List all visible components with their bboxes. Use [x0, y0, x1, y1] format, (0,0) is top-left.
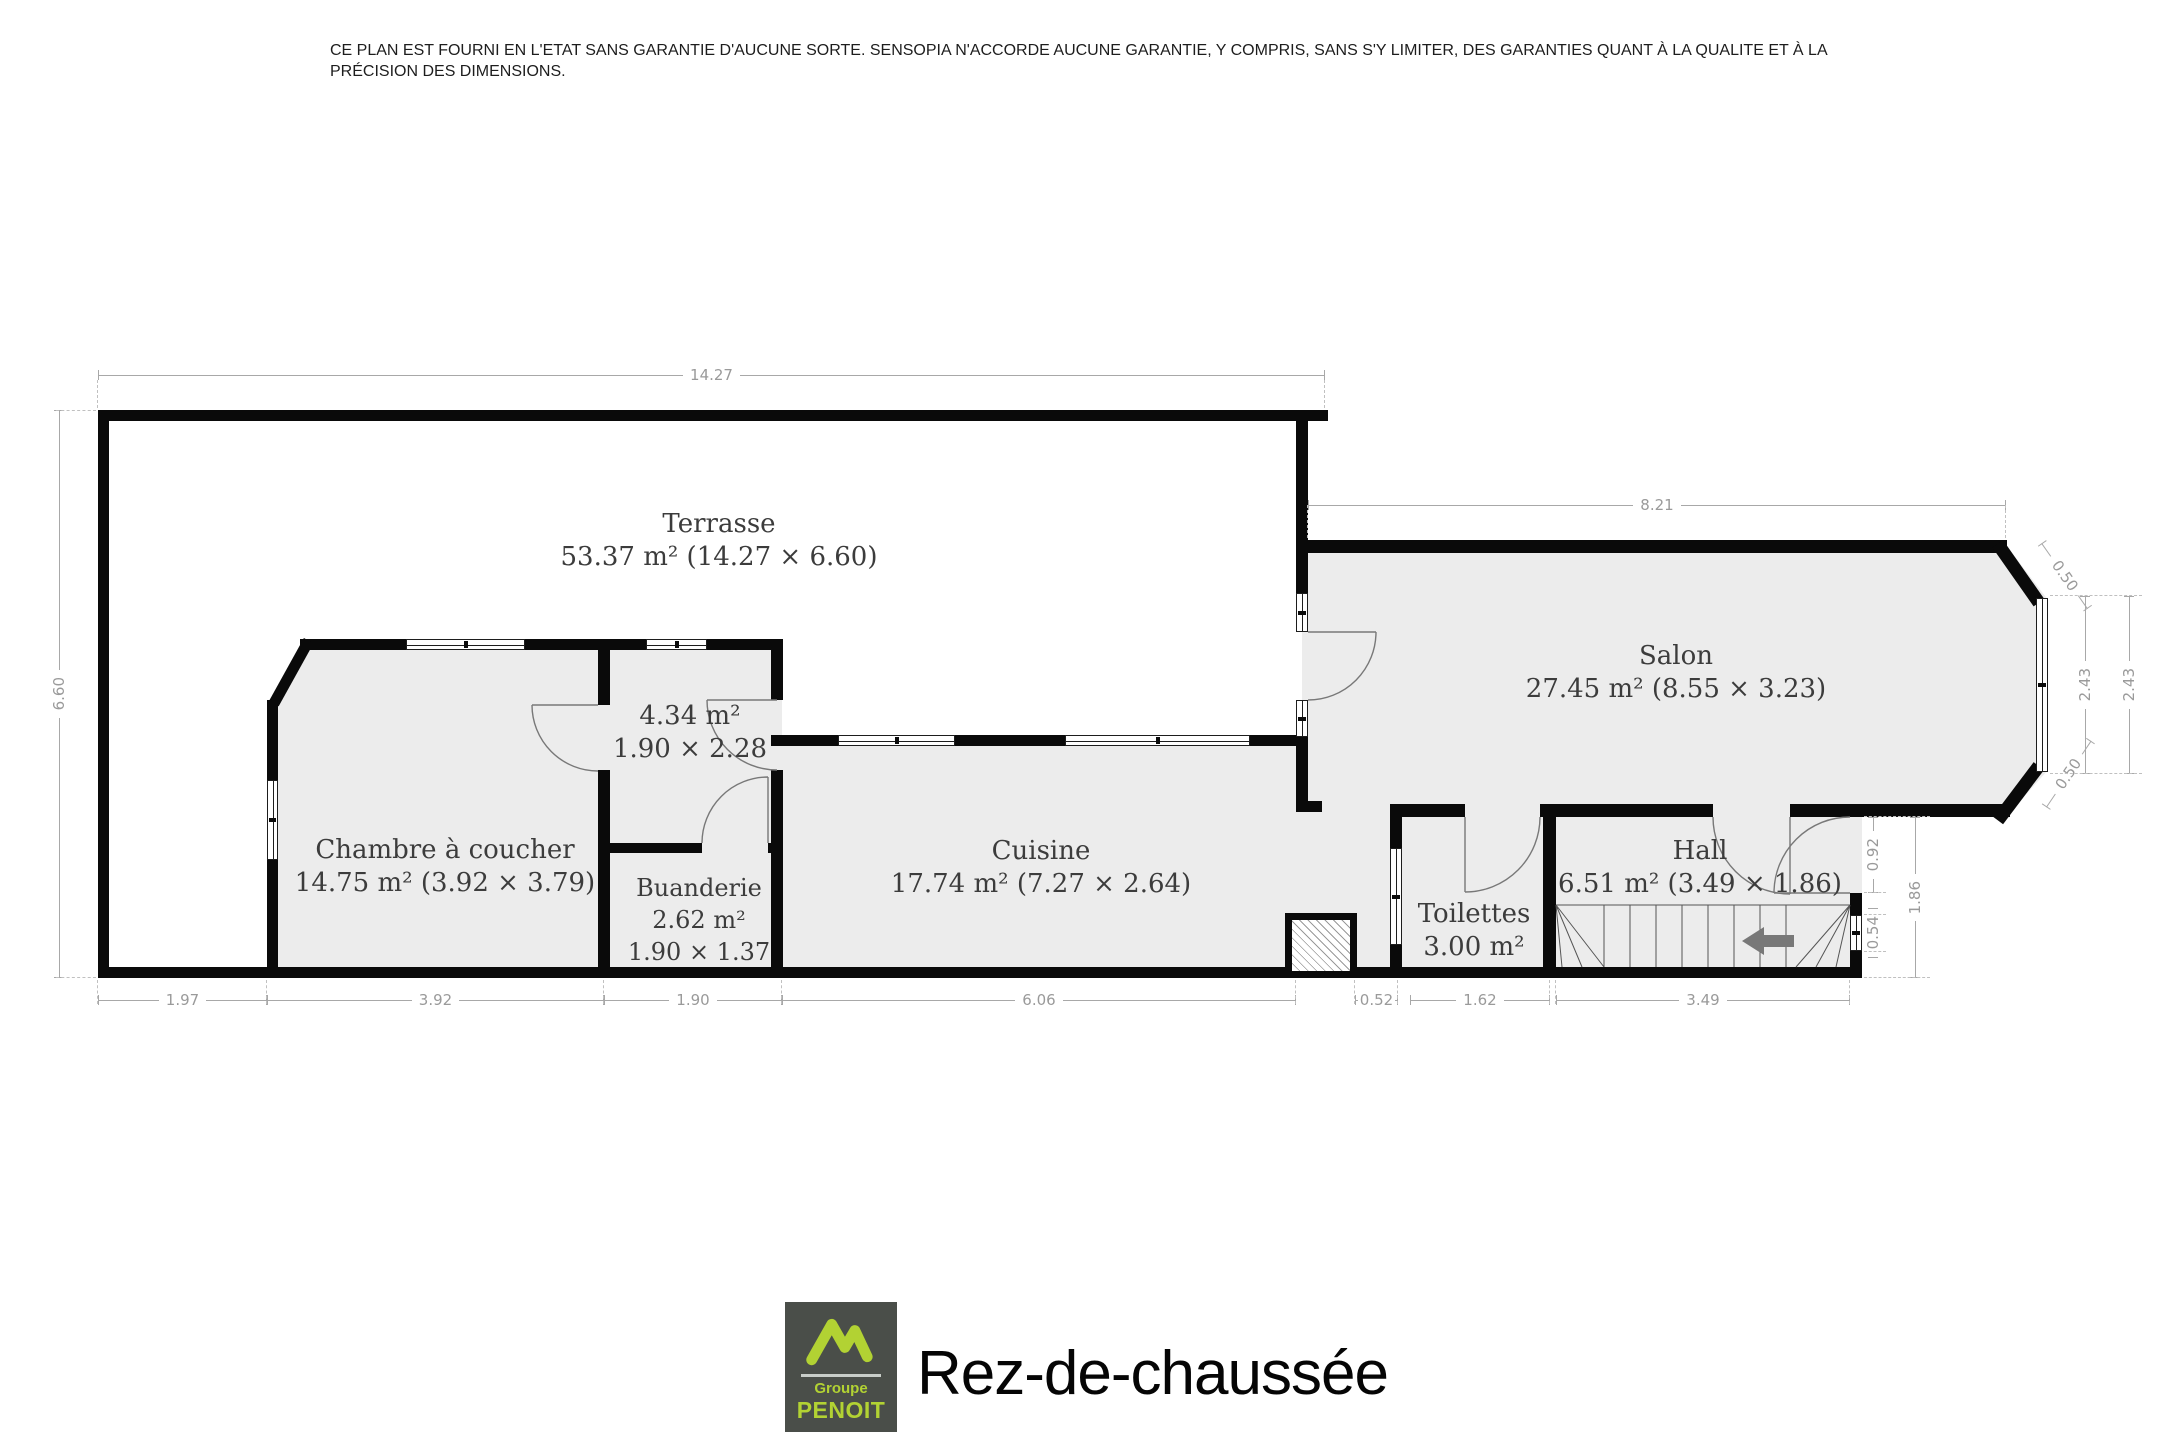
extension-line: [2050, 595, 2142, 596]
extension-line: [56, 410, 96, 411]
extension-line: [1864, 951, 1886, 952]
disclaimer-line2: PRÉCISION DES DIMENSIONS.: [330, 61, 1828, 82]
dimension-hall-depth: 1.86: [1908, 817, 1922, 978]
logo-groupe-text: Groupe: [785, 1380, 897, 1397]
logo-divider: [801, 1374, 881, 1377]
room-label-cuisine: Cuisine 17.74 m² (7.27 × 2.64): [791, 835, 1291, 901]
extension-line: [1864, 816, 1930, 817]
disclaimer-line1: CE PLAN EST FOURNI EN L'ETAT SANS GARANT…: [330, 40, 1828, 61]
wall-bottom: [98, 967, 1862, 978]
wall-divider-bedroom-a: [598, 639, 610, 705]
window: [838, 735, 955, 746]
wall-terrace-salon-stub: [1296, 801, 1322, 812]
extension-line: [266, 980, 267, 1004]
wall-terrace-top: [98, 410, 1328, 421]
extension-line: [1307, 505, 1308, 538]
dimension-terrace-height: 6.60: [52, 410, 66, 978]
window: [1296, 593, 1308, 632]
extension-line: [56, 977, 96, 978]
extension-line: [1324, 380, 1325, 408]
wall-terrace-salon-a: [1296, 410, 1308, 593]
room-label-buanderie: Buanderie 2.62 m² 1.90 × 1.37: [589, 872, 809, 968]
dimension-salon-window-inner: 2.43: [2078, 596, 2092, 774]
extension-line: [1549, 980, 1550, 1004]
wall-annexe-right-a: [771, 639, 783, 700]
extension-line: [781, 980, 782, 1004]
extension-line: [1397, 980, 1398, 1004]
dimension-bottom-3: 1.90: [604, 993, 782, 1007]
dimension-bottom-1: 1.97: [98, 993, 267, 1007]
dimension-bottom-6: 1.62: [1410, 993, 1550, 1007]
extension-line: [97, 380, 98, 408]
extension-line: [1864, 892, 1886, 893]
dimension-salon-window-outer: 2.43: [2122, 596, 2136, 774]
extension-line: [1354, 980, 1355, 1004]
duct-shaft: [1285, 913, 1357, 978]
wall-terrace-left: [98, 410, 109, 978]
roof-icon: [802, 1312, 880, 1366]
extension-line: [1555, 980, 1556, 1004]
disclaimer: CE PLAN EST FOURNI EN L'ETAT SANS GARANT…: [330, 40, 1828, 82]
window: [646, 639, 707, 650]
room-label-salon: Salon 27.45 m² (8.55 × 3.23): [1426, 640, 1926, 706]
floor-plan-page: CE PLAN EST FOURNI EN L'ETAT SANS GARANT…: [0, 0, 2160, 1440]
dimension-bottom-4: 6.06: [782, 993, 1296, 1007]
room-label-terrasse: Terrasse 53.37 m² (14.27 × 6.60): [469, 508, 969, 574]
extension-line: [2050, 773, 2142, 774]
wall-toilettes-left-a: [1390, 804, 1402, 848]
dimension-terrace-width: 14.27: [98, 368, 1325, 382]
wall-hall-right-b: [1850, 951, 1862, 978]
floor-title: Rez-de-chaussée: [917, 1343, 1388, 1405]
wall-bedroom-left-a: [267, 700, 278, 780]
extension-line: [97, 980, 98, 1004]
wall-buanderie-divider-b: [768, 843, 783, 853]
dimension-salon-width: 8.21: [1308, 498, 2006, 512]
extension-line: [1864, 914, 1886, 915]
window: [1296, 700, 1308, 737]
window: [1065, 735, 1250, 746]
extension-line: [1864, 977, 1930, 978]
room-label-toilettes: Toilettes 3.00 m²: [1374, 898, 1574, 964]
extension-line: [603, 980, 604, 1004]
dimension-hall-door: 0.92: [1866, 817, 1880, 893]
agency-logo: Groupe PENOIT: [785, 1302, 897, 1432]
wall-salon-bottom-b: [1540, 804, 1713, 817]
dimension-bottom-7: 3.49: [1556, 993, 1850, 1007]
logo-penoit-text: PENOIT: [785, 1397, 897, 1424]
window: [406, 639, 525, 650]
room-label-annexe: 4.34 m² 1.90 × 2.28: [565, 700, 815, 766]
extension-line: [2005, 505, 2006, 538]
extension-line: [1295, 980, 1296, 1004]
dimension-bottom-5: 0.52: [1355, 993, 1398, 1007]
window: [1850, 915, 1862, 951]
wall-salon-top: [1302, 540, 2007, 553]
extension-line: [1849, 980, 1850, 1004]
dimension-bottom-2: 3.92: [267, 993, 604, 1007]
window: [2036, 598, 2048, 772]
